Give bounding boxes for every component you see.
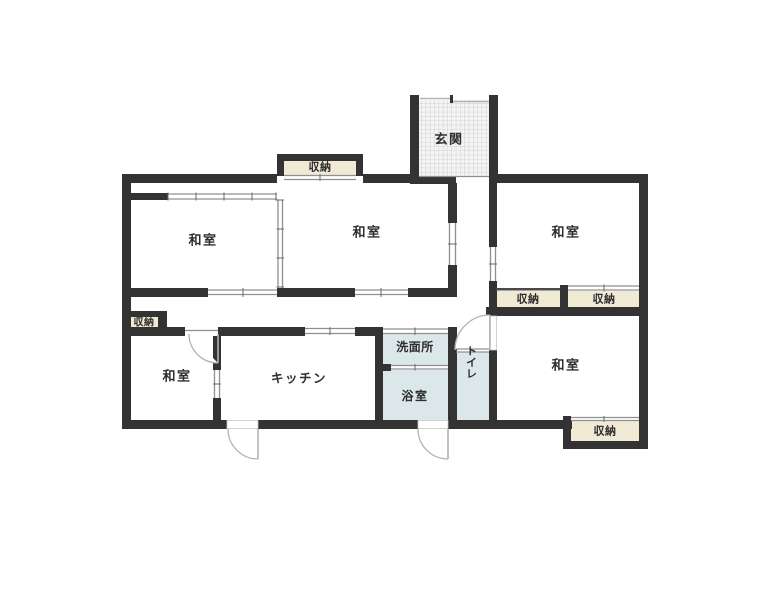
wall-ul-window-stub [131,193,168,200]
wall-divider-b [213,398,221,429]
label-washitsu-upper-middle: 和室 [352,225,381,241]
label-washitsu-lower-right: 和室 [551,358,580,374]
wall-divider-a [213,336,221,370]
label-storage-right-b: 収納 [593,292,616,306]
label-storage-right-a: 収納 [517,292,540,306]
wall-outer-left [122,174,131,429]
door-opening-south-1 [227,421,258,429]
wall-kitchen-right [375,327,383,429]
door-opening-south-2 [418,421,448,429]
wall-entrance-right [489,95,498,183]
label-washitsu-upper-right: 和室 [551,225,580,241]
label-bathroom: 浴室 [401,388,428,403]
wall-bath-divider-stub [383,364,391,371]
wall-top-mid [363,174,413,183]
label-genkan: 玄関 [434,132,463,148]
floor-plan-canvas: 玄関 和室 和室 和室 和室 和室 キッチン 洗面所 浴室 トイレ 収納 収納 … [0,0,782,600]
wall-top-right [489,174,648,183]
wall-lr-closet-bottom [563,441,648,449]
wall-closet-band-bottom [486,307,648,316]
label-kitchen: キッチン [271,371,327,386]
label-storage-lower-right: 収納 [594,424,617,438]
label-washitsu-upper-left: 和室 [188,233,217,249]
wall-rightblock-left-c [489,350,497,429]
floor-plan-drawing: 玄関 和室 和室 和室 和室 和室 キッチン 洗面所 浴室 トイレ 収納 収納 … [0,0,782,600]
canvas-background [0,0,782,600]
wall-bottom-1 [122,420,227,429]
wall-lower-top-b [218,327,305,336]
closet-a-front-line [496,288,560,291]
label-washroom: 洗面所 [396,339,434,354]
wall-bottom-2 [258,420,418,429]
wall-ul-bottom [122,288,208,297]
wall-um-bottom-a [277,288,355,297]
label-storage-top: 収納 [309,160,332,174]
label-toilet: トイレ [465,345,478,380]
wall-entrance-left [410,95,419,183]
wall-rightblock-left-a [489,183,497,247]
label-washitsu-lower-left: 和室 [162,369,191,385]
wall-um-bottom-b [408,288,457,297]
wall-bottom-3 [448,420,572,429]
wall-top-left [122,174,277,183]
wall-midroom-right-a [448,183,457,223]
label-storage-hallway: 収納 [134,316,155,329]
entrance-door-stile [450,95,453,103]
